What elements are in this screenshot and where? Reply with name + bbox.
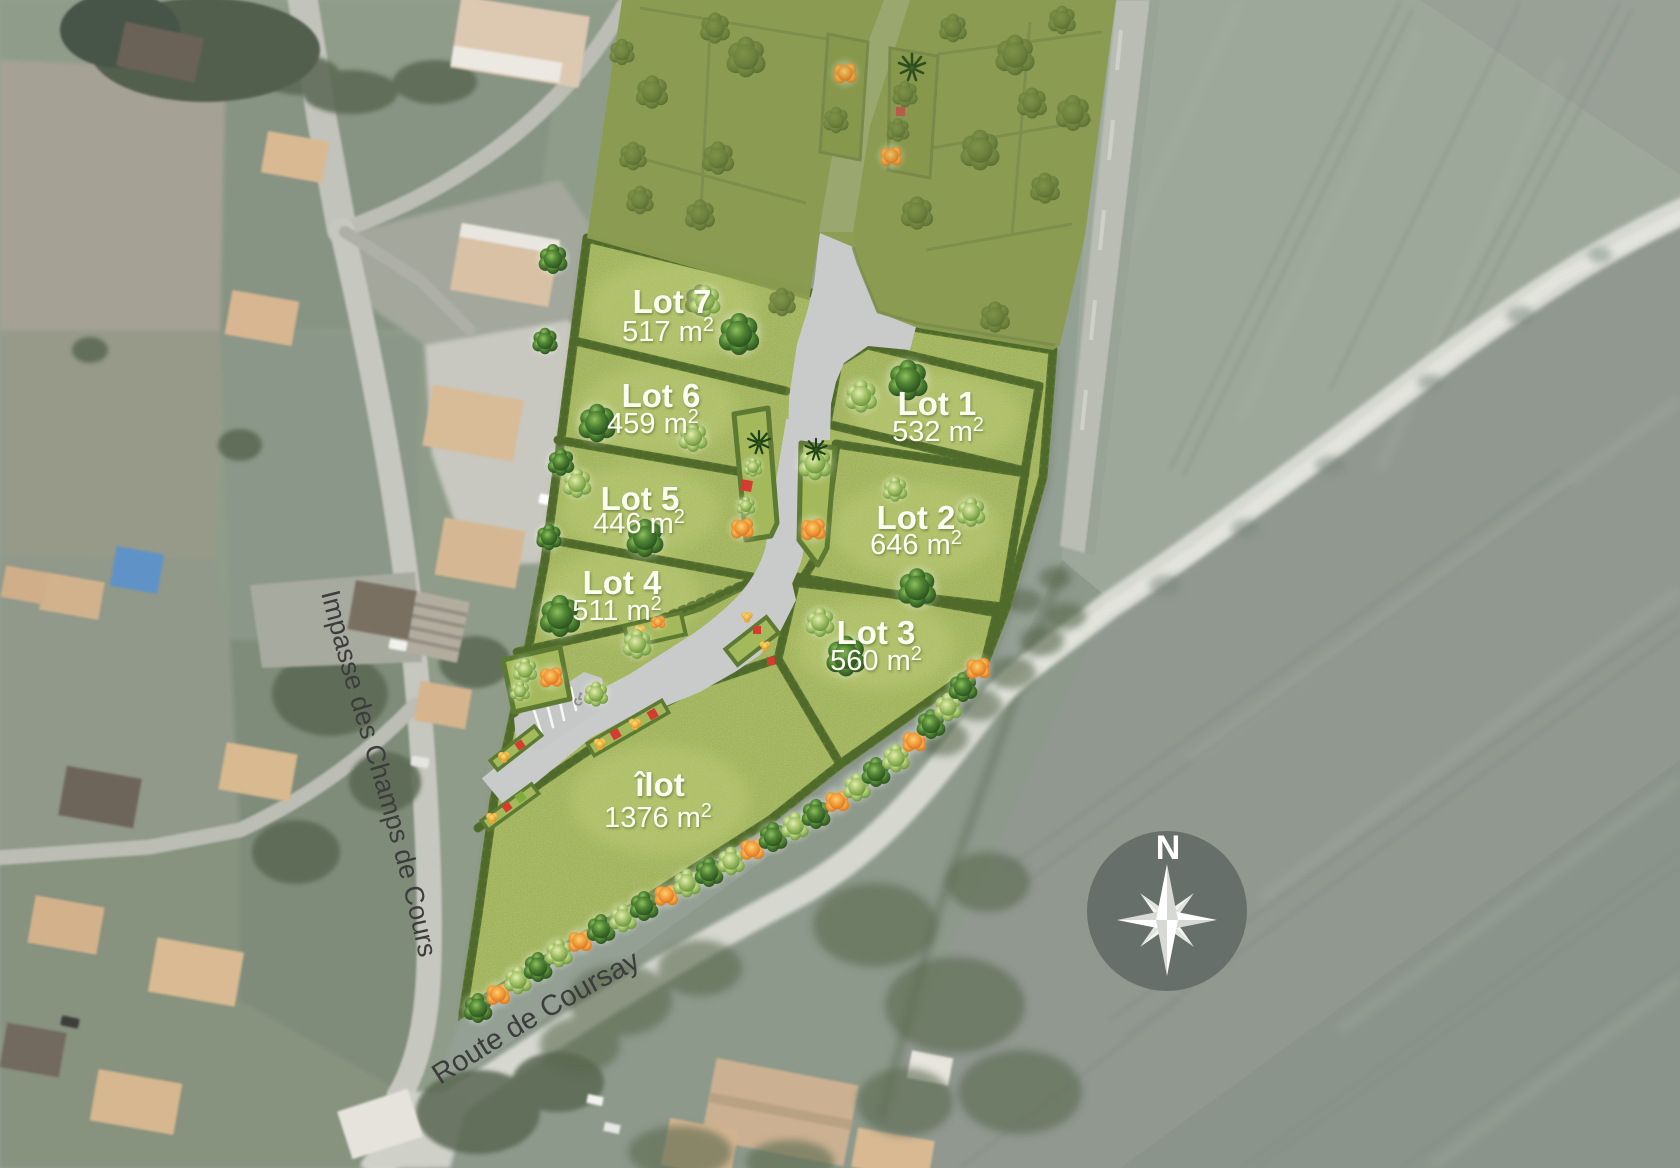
svg-text:517 m2: 517 m2	[622, 314, 714, 348]
svg-text:511 m2: 511 m2	[572, 593, 662, 627]
svg-text:îlot: îlot	[633, 766, 684, 803]
svg-text:N: N	[1156, 829, 1181, 867]
svg-text:459 m2: 459 m2	[607, 406, 699, 440]
svg-text:1376 m2: 1376 m2	[604, 800, 712, 834]
svg-text:Lot 7: Lot 7	[633, 283, 712, 320]
svg-text:532 m2: 532 m2	[892, 414, 984, 448]
svg-text:446 m2: 446 m2	[593, 506, 685, 540]
svg-text:646 m2: 646 m2	[870, 527, 962, 561]
svg-text:560 m2: 560 m2	[830, 643, 922, 677]
